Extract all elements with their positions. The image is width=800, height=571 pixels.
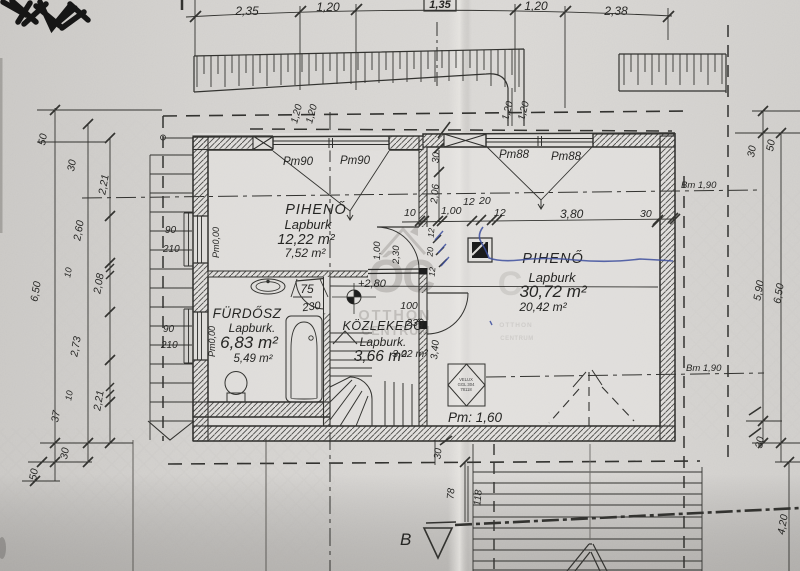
- svg-text:3,80: 3,80: [560, 207, 584, 221]
- svg-text:Pm: 1,60: Pm: 1,60: [448, 410, 503, 425]
- svg-text:Bm 1,90: Bm 1,90: [681, 180, 717, 191]
- svg-text:50: 50: [27, 468, 41, 482]
- svg-text:30: 30: [433, 447, 445, 459]
- svg-text:1,00: 1,00: [441, 205, 462, 217]
- svg-text:Pm90: Pm90: [283, 156, 314, 168]
- svg-text:CENTRUM: CENTRUM: [500, 336, 534, 342]
- svg-text:30,72 m²: 30,72 m²: [519, 282, 587, 301]
- svg-text:7,52 m²: 7,52 m²: [285, 246, 327, 260]
- svg-text:Pm0,00: Pm0,00: [207, 326, 217, 357]
- svg-text:1,00: 1,00: [372, 241, 383, 260]
- svg-text:6,83 m²: 6,83 m²: [220, 333, 279, 352]
- svg-text:Pm90: Pm90: [340, 155, 371, 167]
- svg-text:30: 30: [431, 151, 443, 163]
- svg-text:12: 12: [494, 207, 506, 219]
- svg-text:10: 10: [63, 390, 75, 402]
- svg-text:230: 230: [405, 317, 424, 329]
- svg-text:PIHENŐ: PIHENŐ: [285, 201, 347, 218]
- svg-text:50: 50: [764, 139, 778, 153]
- svg-text:20: 20: [478, 195, 491, 207]
- svg-text:20: 20: [425, 246, 436, 258]
- svg-text:FÜRDŐSZ: FÜRDŐSZ: [213, 306, 282, 321]
- svg-text:90: 90: [165, 225, 177, 236]
- svg-text:B: B: [400, 530, 411, 549]
- svg-text:Lapburk: Lapburk: [285, 217, 333, 232]
- svg-text:50: 50: [36, 133, 50, 147]
- svg-text:12: 12: [426, 227, 437, 238]
- svg-text:3,02 m²: 3,02 m²: [392, 348, 428, 360]
- svg-text:210: 210: [162, 244, 180, 255]
- svg-text:+2,80: +2,80: [358, 278, 387, 290]
- svg-text:10: 10: [62, 267, 74, 279]
- svg-text:12: 12: [463, 196, 475, 208]
- svg-text:2,30: 2,30: [391, 245, 402, 265]
- svg-text:Bm 1,90: Bm 1,90: [686, 363, 722, 374]
- svg-text:2,06: 2,06: [429, 183, 442, 205]
- svg-text:78: 78: [446, 487, 458, 499]
- svg-text:1,20: 1,20: [524, 0, 548, 13]
- svg-text:90: 90: [163, 324, 175, 335]
- svg-text:210: 210: [160, 340, 178, 351]
- svg-text:30: 30: [640, 208, 652, 220]
- svg-text:Lapburk.: Lapburk.: [360, 335, 407, 349]
- svg-text:20,42 m²: 20,42 m²: [518, 300, 567, 314]
- svg-text:1,20: 1,20: [316, 0, 340, 14]
- svg-text:2,35: 2,35: [234, 4, 259, 18]
- svg-text:5,49 m²: 5,49 m²: [234, 353, 274, 365]
- svg-text:30: 30: [753, 436, 767, 450]
- svg-text:118: 118: [472, 489, 484, 506]
- svg-text:1,35: 1,35: [429, 0, 451, 11]
- svg-text:30: 30: [58, 447, 72, 461]
- svg-text:10: 10: [404, 207, 416, 219]
- svg-text:Pm88: Pm88: [551, 151, 582, 163]
- svg-text:100: 100: [400, 300, 418, 312]
- svg-text:78118: 78118: [460, 387, 472, 392]
- svg-text:30: 30: [65, 159, 79, 173]
- svg-text:3,40: 3,40: [429, 339, 442, 360]
- svg-text:12: 12: [427, 266, 438, 277]
- svg-text:Pm88: Pm88: [499, 149, 530, 161]
- svg-text:75: 75: [300, 282, 314, 296]
- svg-text:OTTHON: OTTHON: [499, 322, 532, 329]
- svg-text:30: 30: [745, 145, 759, 159]
- svg-text:Pm0,00: Pm0,00: [211, 227, 221, 258]
- svg-text:2,38: 2,38: [603, 4, 628, 18]
